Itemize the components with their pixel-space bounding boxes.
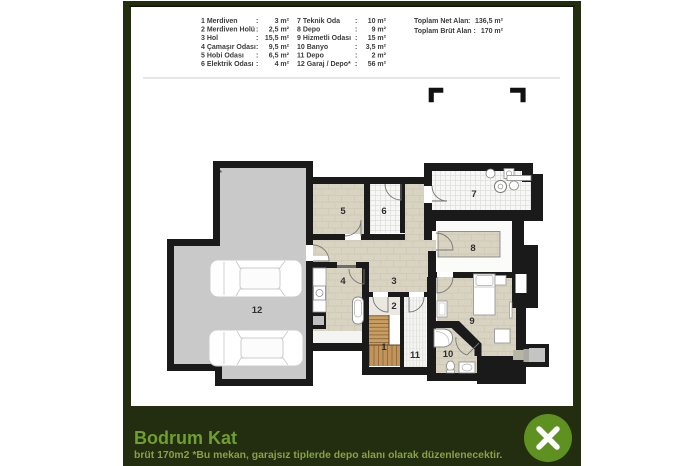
svg-text:Toplam Net Alan: Toplam Net Alan [414, 18, 468, 25]
svg-text:136,5 m²: 136,5 m² [475, 18, 504, 25]
svg-text:Toplam Brüt Alan :: Toplam Brüt Alan : [414, 28, 476, 35]
svg-text::: : [256, 18, 258, 25]
svg-text:6 Elektrik Odası: 6 Elektrik Odası [201, 61, 254, 68]
svg-text:11: 11 [410, 350, 421, 361]
svg-text:4: 4 [340, 276, 346, 287]
svg-text::: : [355, 18, 357, 25]
svg-text:4 Çamaşır Odası: 4 Çamaşır Odası [201, 44, 256, 51]
svg-text:Bodrum Kat: Bodrum Kat [134, 428, 237, 448]
svg-text::: : [256, 52, 258, 59]
svg-text:3,5 m²: 3,5 m² [366, 44, 387, 51]
svg-text:1 Merdiven: 1 Merdiven [201, 18, 238, 25]
svg-text:12: 12 [252, 305, 263, 316]
svg-text:10 m²: 10 m² [368, 18, 387, 25]
svg-text::: : [355, 52, 357, 59]
svg-text::: : [256, 27, 258, 34]
svg-text:15 m²: 15 m² [368, 35, 387, 42]
svg-text:2 Merdiven Holü: 2 Merdiven Holü [201, 27, 255, 34]
svg-text:3 m²: 3 m² [275, 18, 290, 25]
svg-text:3: 3 [391, 276, 396, 287]
svg-text::: : [355, 35, 357, 42]
svg-text:2 m²: 2 m² [372, 52, 387, 59]
svg-text:2: 2 [391, 301, 396, 312]
svg-text:brüt 170m2 *Bu mekan, garajsız: brüt 170m2 *Bu mekan, garajsız tiplerde … [134, 450, 503, 461]
svg-text:6,5 m²: 6,5 m² [269, 52, 290, 59]
svg-text:1: 1 [381, 342, 387, 353]
svg-text::: : [355, 27, 357, 34]
svg-text:56 m²: 56 m² [368, 61, 387, 68]
svg-text:9,5 m²: 9,5 m² [269, 44, 290, 51]
svg-text:8: 8 [470, 243, 475, 254]
svg-text::: : [468, 18, 470, 25]
svg-text:9 Hizmetli Odası: 9 Hizmetli Odası [297, 35, 351, 42]
svg-text::: : [256, 44, 258, 51]
svg-text:170 m²: 170 m² [481, 28, 504, 35]
svg-text:5 Hobi Odası: 5 Hobi Odası [201, 52, 244, 59]
svg-text:9: 9 [469, 316, 474, 327]
svg-text::: : [355, 61, 357, 68]
svg-text:10: 10 [443, 349, 454, 360]
svg-text::: : [256, 61, 258, 68]
svg-text::: : [355, 44, 357, 51]
svg-text:7 Teknik Oda: 7 Teknik Oda [297, 18, 340, 25]
svg-text:12 Garaj / Depo*: 12 Garaj / Depo* [297, 61, 351, 68]
svg-text:8 Depo: 8 Depo [297, 27, 320, 34]
svg-text:6: 6 [381, 206, 386, 217]
svg-text:10 Banyo: 10 Banyo [297, 44, 328, 51]
svg-text:15,5 m²: 15,5 m² [265, 35, 290, 42]
svg-text:3 Hol: 3 Hol [201, 35, 218, 42]
svg-text:7: 7 [471, 189, 476, 200]
svg-text:5: 5 [340, 206, 346, 217]
svg-text:11 Depo: 11 Depo [297, 52, 324, 59]
svg-text::: : [256, 35, 258, 42]
svg-text:4 m²: 4 m² [275, 61, 290, 68]
svg-text:2,5 m²: 2,5 m² [269, 27, 290, 34]
svg-text:9 m²: 9 m² [372, 27, 387, 34]
